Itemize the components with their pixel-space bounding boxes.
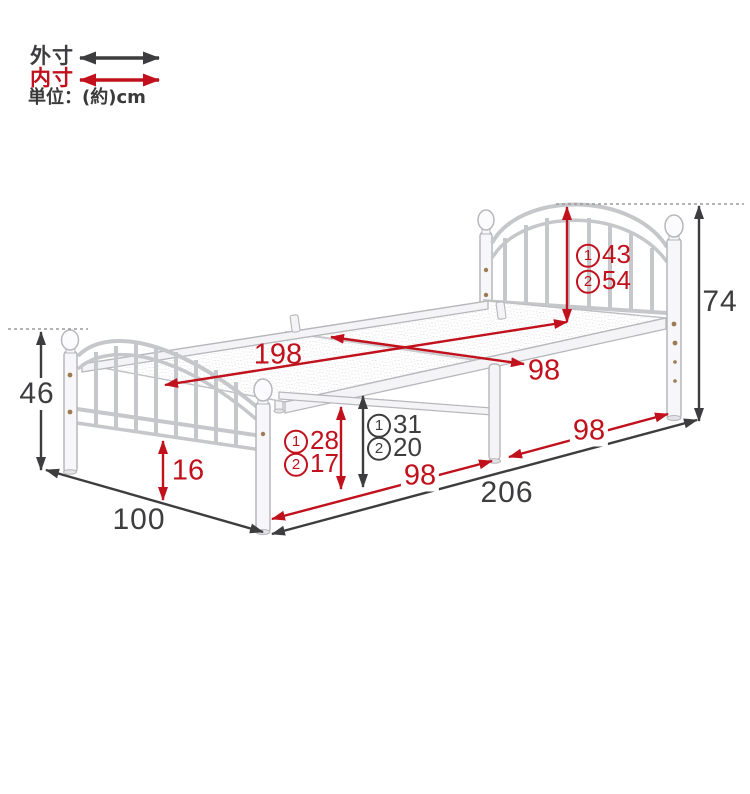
dim-under-clearance-2: 217 [284,450,339,477]
headboard-near-post [665,215,683,421]
legend-outer-label: 外寸 [30,46,74,67]
legend-inner-label: 内寸 [30,68,74,89]
dim-platform-height-2: 220 [367,434,422,461]
mesh-clip-left [290,315,300,333]
mesh-clip-right [496,302,506,320]
legend-arrows [80,58,159,80]
circled-step-icon: 2 [576,269,600,293]
middle-leg-near [489,364,500,460]
legend-unit-label: 単位：(約)cm [28,89,146,107]
circled-step-icon: 2 [367,436,391,460]
dim-outer-width: 100 [112,505,165,535]
circled-step-icon: 1 [576,243,600,267]
dim-outer-length: 206 [480,478,533,508]
dim-floor-span-left: 98 [401,461,439,492]
circled-step-icon: 2 [284,452,308,476]
dim-inner-width: 98 [528,357,560,386]
dim-floor-span-right: 98 [570,416,608,447]
bed-illustration [0,0,750,794]
dim-footboard-floor-gap: 16 [172,457,204,486]
dim-footboard-height: 46 [16,378,57,410]
dim-headboard-height: 74 [702,287,737,317]
footboard-front-post [256,402,270,533]
dim-headboard-inner-height-1: 143 [576,241,631,268]
platform-mesh [82,301,666,413]
dim-headboard-inner-height-2: 254 [576,267,631,294]
bed-dimension-diagram: 外寸 内寸 単位：(約)cm 198 98 143 254 128 217 13… [0,0,750,794]
dim-inner-length: 198 [254,341,302,370]
